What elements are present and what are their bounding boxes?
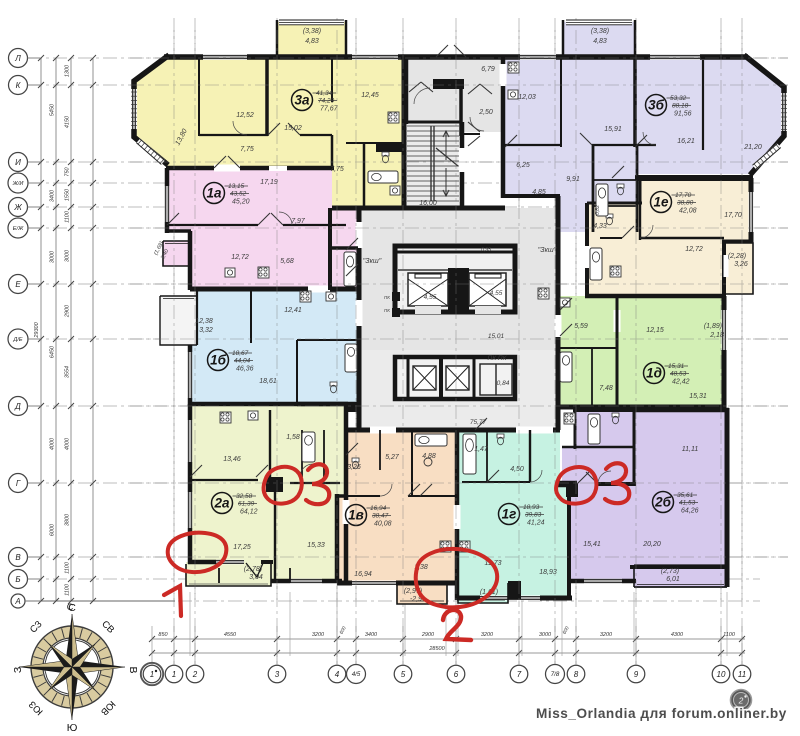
svg-text:39,83: 39,83	[525, 512, 542, 519]
svg-text:3000: 3000	[539, 632, 552, 638]
svg-text:12,41: 12,41	[284, 307, 302, 314]
svg-text:2900: 2900	[421, 632, 435, 638]
svg-text:3а: 3а	[294, 93, 310, 108]
svg-text:3,32: 3,32	[199, 327, 213, 334]
svg-text:40,08: 40,08	[374, 521, 392, 528]
svg-text:45,20: 45,20	[232, 199, 250, 206]
svg-text:3: 3	[275, 670, 280, 679]
svg-text:3800: 3800	[65, 513, 71, 526]
svg-text:7,97: 7,97	[291, 218, 306, 225]
svg-text:4,55: 4,55	[424, 294, 437, 301]
svg-text:64,26: 64,26	[681, 508, 699, 515]
svg-text:3б: 3б	[648, 98, 665, 113]
svg-text:Г: Г	[16, 479, 21, 488]
svg-text:4,88: 4,88	[422, 453, 436, 460]
svg-text:0,84: 0,84	[497, 380, 510, 387]
svg-text:2: 2	[192, 670, 198, 679]
svg-text:З: З	[12, 667, 24, 673]
svg-text:1: 1	[172, 670, 176, 679]
svg-text:0,82: 0,82	[595, 205, 601, 215]
svg-text:41,53: 41,53	[679, 500, 696, 507]
svg-text:1100: 1100	[65, 583, 71, 596]
svg-text:3,26: 3,26	[734, 261, 748, 268]
svg-text:12,45: 12,45	[361, 92, 379, 99]
svg-text:6000: 6000	[50, 523, 56, 536]
svg-text:48,53: 48,53	[670, 371, 687, 378]
svg-text:13,15: 13,15	[228, 183, 245, 190]
svg-text:4550: 4550	[224, 632, 237, 638]
svg-text:И: И	[15, 158, 21, 167]
svg-text:3200: 3200	[600, 632, 613, 638]
svg-text:(1,89): (1,89)	[704, 323, 722, 330]
svg-text:15,31: 15,31	[689, 393, 707, 400]
svg-text:15,02: 15,02	[284, 125, 302, 132]
svg-text:28500: 28500	[428, 646, 445, 652]
svg-text:850: 850	[158, 632, 168, 638]
svg-text:9,91: 9,91	[566, 176, 580, 183]
svg-text:38,80: 38,80	[677, 200, 694, 207]
svg-text:(2,73): (2,73)	[661, 568, 679, 575]
svg-text:91,56: 91,56	[674, 111, 692, 118]
svg-text:Ж: Ж	[13, 203, 22, 212]
svg-text:4150: 4150	[65, 115, 71, 128]
svg-text:Д: Д	[14, 402, 21, 411]
svg-text:15,31: 15,31	[668, 363, 685, 370]
svg-text:9: 9	[634, 670, 639, 679]
svg-text:18,93: 18,93	[539, 569, 557, 576]
svg-text:(3,38): (3,38)	[591, 28, 609, 35]
svg-text:16,21: 16,21	[677, 138, 695, 145]
svg-text:3200: 3200	[481, 632, 494, 638]
svg-text:Е/Ж: Е/Ж	[13, 226, 24, 232]
svg-text:12,72: 12,72	[685, 246, 703, 253]
svg-text:18,93: 18,93	[523, 504, 540, 511]
svg-text:18,67: 18,67	[232, 350, 249, 357]
svg-text:4,83: 4,83	[593, 38, 607, 45]
svg-text:15,33: 15,33	[307, 542, 325, 549]
svg-text:4000: 4000	[50, 437, 56, 450]
svg-text:Ж/И: Ж/И	[12, 181, 24, 187]
svg-text:1д: 1д	[646, 366, 662, 381]
svg-text:4,85: 4,85	[532, 189, 546, 196]
svg-text:21,20: 21,20	[743, 144, 762, 151]
svg-text:12,38: 12,38	[195, 318, 213, 325]
svg-text:1б: 1б	[210, 353, 227, 368]
svg-text:4000: 4000	[65, 437, 71, 450]
svg-text:7,75: 7,75	[240, 146, 254, 153]
svg-text:7: 7	[517, 670, 522, 679]
svg-text:32,58: 32,58	[236, 493, 253, 500]
svg-text:1300: 1300	[65, 64, 71, 77]
svg-text:3,26: 3,26	[347, 464, 361, 471]
svg-text:4/5: 4/5	[352, 671, 361, 678]
svg-text:3200: 3200	[312, 632, 325, 638]
svg-text:"Зкш": "Зкш"	[538, 247, 557, 254]
svg-text:38,47: 38,47	[372, 513, 389, 520]
svg-text:2а: 2а	[213, 496, 230, 511]
svg-text:41,24: 41,24	[527, 520, 545, 527]
svg-text:77,67: 77,67	[320, 106, 339, 113]
svg-text:12,03: 12,03	[518, 94, 536, 101]
svg-text:42,42: 42,42	[672, 379, 690, 386]
svg-text:Д/Е: Д/Е	[12, 337, 22, 343]
svg-text:12,72: 12,72	[231, 254, 249, 261]
svg-text:17,19: 17,19	[260, 179, 278, 186]
svg-text:5,68: 5,68	[280, 258, 294, 265]
svg-text:2: 2	[738, 696, 744, 706]
svg-text:4300: 4300	[671, 632, 684, 638]
svg-text:В: В	[15, 553, 21, 562]
svg-text:88,18: 88,18	[672, 103, 689, 110]
svg-text:7/8: 7/8	[551, 671, 560, 678]
svg-text:(2,78): (2,78)	[244, 566, 262, 573]
svg-text:4,55: 4,55	[490, 290, 503, 297]
svg-text:44,04: 44,04	[234, 358, 251, 365]
svg-text:17,70: 17,70	[724, 212, 742, 219]
svg-text:17,25: 17,25	[233, 544, 251, 551]
svg-text:2900: 2900	[65, 304, 71, 318]
svg-text:6: 6	[454, 670, 459, 679]
svg-text:1а: 1а	[206, 186, 222, 201]
svg-text:43,52: 43,52	[230, 191, 247, 198]
svg-text:2б: 2б	[654, 495, 672, 510]
svg-text:10: 10	[717, 670, 726, 679]
svg-text:18,61: 18,61	[259, 378, 277, 385]
svg-text:5,27: 5,27	[385, 454, 400, 461]
svg-text:(3,38): (3,38)	[303, 28, 321, 35]
svg-text:ПК: ПК	[384, 295, 390, 300]
svg-text:1550: 1550	[65, 188, 71, 201]
svg-text:4,33: 4,33	[593, 223, 607, 230]
svg-text:13,46: 13,46	[223, 456, 241, 463]
svg-text:1,47: 1,47	[474, 446, 489, 453]
svg-text:3400: 3400	[365, 632, 378, 638]
svg-text:1г: 1г	[502, 507, 517, 522]
svg-text:17,70: 17,70	[675, 192, 692, 199]
svg-text:С: С	[68, 602, 76, 614]
svg-text:6,01: 6,01	[666, 576, 680, 583]
svg-text:750: 750	[65, 166, 71, 176]
svg-text:В: В	[127, 666, 139, 673]
svg-text:"Зкш": "Зкш"	[363, 258, 382, 265]
svg-text:16,94: 16,94	[370, 505, 387, 512]
svg-text:16,00: 16,00	[419, 200, 437, 207]
svg-text:15,41: 15,41	[583, 541, 601, 548]
svg-text:6450: 6450	[50, 345, 56, 358]
svg-text:11: 11	[738, 670, 746, 679]
svg-text:2,18: 2,18	[709, 332, 724, 339]
svg-text:4: 4	[335, 670, 340, 679]
svg-text:1: 1	[150, 670, 154, 679]
svg-text:1,58: 1,58	[286, 434, 300, 441]
svg-text:42,08: 42,08	[679, 208, 697, 215]
svg-text:20,20: 20,20	[642, 541, 661, 548]
svg-text:29300: 29300	[34, 321, 40, 338]
svg-text:0,95: 0,95	[481, 247, 491, 253]
svg-text:35,61: 35,61	[677, 492, 694, 499]
svg-text:(2,28): (2,28)	[728, 253, 746, 260]
svg-text:6,25: 6,25	[516, 162, 530, 169]
svg-text:3,04: 3,04	[249, 574, 263, 581]
svg-text:1100: 1100	[65, 210, 71, 223]
svg-text:11,11: 11,11	[682, 446, 699, 453]
svg-text:41,34: 41,34	[316, 90, 333, 97]
svg-text:А: А	[14, 597, 20, 606]
svg-text:Б: Б	[15, 575, 20, 584]
svg-text:16,94: 16,94	[354, 571, 372, 578]
svg-text:Ю: Ю	[67, 722, 78, 734]
svg-text:Miss_Orlandia для forum.online: Miss_Orlandia для forum.onliner.by	[536, 706, 787, 721]
svg-text:15,91: 15,91	[604, 126, 622, 133]
svg-text:64,12: 64,12	[240, 509, 258, 516]
svg-text:53,32: 53,32	[670, 95, 687, 102]
svg-text:1100: 1100	[723, 632, 736, 638]
svg-text:ПК: ПК	[384, 308, 390, 313]
svg-text:Л: Л	[14, 54, 21, 63]
svg-text:12,15: 12,15	[646, 327, 664, 334]
svg-text:61,39: 61,39	[238, 501, 255, 508]
svg-text:8: 8	[574, 670, 579, 679]
svg-text:3554: 3554	[65, 366, 71, 378]
svg-text:5: 5	[401, 670, 406, 679]
svg-text:75,77: 75,77	[470, 419, 487, 426]
svg-text:1100: 1100	[65, 561, 71, 574]
svg-text:1е: 1е	[653, 195, 669, 210]
svg-text:12,52: 12,52	[236, 112, 254, 119]
svg-text:6,79: 6,79	[481, 66, 495, 73]
svg-text:4,83: 4,83	[305, 38, 319, 45]
svg-text:4,50: 4,50	[510, 466, 524, 473]
svg-text:Е: Е	[15, 280, 21, 289]
svg-text:74,29: 74,29	[318, 98, 335, 105]
svg-text:3400: 3400	[50, 189, 56, 202]
svg-text:3000: 3000	[65, 249, 71, 262]
svg-text:3000: 3000	[50, 250, 56, 263]
svg-text:ПК ПК: ПК ПК	[488, 355, 508, 362]
svg-text:2,50: 2,50	[478, 109, 493, 116]
svg-text:46,36: 46,36	[236, 366, 254, 373]
svg-text:7,48: 7,48	[599, 385, 613, 392]
svg-text:5450: 5450	[50, 103, 56, 116]
